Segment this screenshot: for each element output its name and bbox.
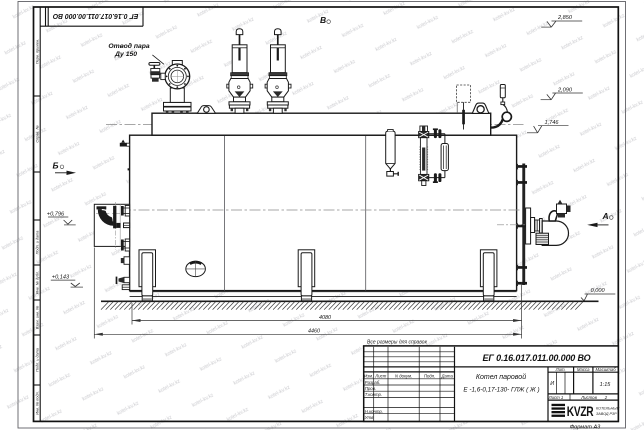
svg-text:Лит.: Лит. — [555, 367, 566, 372]
svg-text:Изм.: Изм. — [364, 373, 373, 378]
svg-text:ЕГ 0.16.017.011.00.000 ВО: ЕГ 0.16.017.011.00.000 ВО — [483, 353, 591, 363]
svg-text:Котел паровой: Котел паровой — [476, 373, 526, 381]
svg-text:Б: Б — [53, 161, 59, 171]
svg-text:Пров.: Пров. — [365, 386, 376, 391]
svg-text:Формат А3: Формат А3 — [570, 424, 601, 430]
svg-text:Инв. № дубл.: Инв. № дубл. — [35, 271, 39, 294]
svg-text:Ду 150: Ду 150 — [114, 51, 137, 58]
svg-text:Разраб.: Разраб. — [365, 380, 381, 385]
svg-text:1:15: 1:15 — [600, 382, 612, 388]
svg-text:1,746: 1,746 — [545, 120, 560, 126]
svg-text:Лист 1: Лист 1 — [548, 395, 564, 400]
svg-text:В: В — [320, 15, 326, 25]
svg-text:Дата: Дата — [441, 373, 454, 378]
svg-text:+0,143: +0,143 — [52, 274, 70, 280]
svg-text:4080: 4080 — [319, 315, 331, 321]
svg-text:KVZR: KVZR — [567, 403, 594, 419]
svg-text:Масса: Масса — [577, 367, 590, 372]
svg-text:0,000: 0,000 — [591, 288, 606, 294]
svg-text:Справ. №: Справ. № — [35, 125, 39, 142]
svg-text:Лист: Лист — [374, 373, 386, 378]
svg-text:Инв. № подл.: Инв. № подл. — [35, 391, 39, 415]
svg-text:ЗАВОД РЗР: ЗАВОД РЗР — [596, 412, 617, 416]
svg-text:Масштаб: Масштаб — [596, 367, 617, 372]
svg-text:А: А — [602, 211, 609, 221]
svg-text:Все размеры для справок: Все размеры для справок — [367, 339, 428, 345]
svg-text:Подп. и дата: Подп. и дата — [35, 231, 39, 255]
svg-text:2,850: 2,850 — [557, 15, 573, 21]
svg-text:Перв. примен.: Перв. примен. — [35, 39, 39, 64]
svg-text:ЕГ 0.16.017.011.00.000 ВО: ЕГ 0.16.017.011.00.000 ВО — [52, 12, 138, 19]
svg-text:Н.контр.: Н.контр. — [365, 409, 383, 414]
svg-text:Утв.: Утв. — [365, 415, 375, 420]
svg-text:Т.контр.: Т.контр. — [365, 392, 382, 397]
svg-text:Отвод пара: Отвод пара — [108, 42, 150, 50]
svg-text:КОТЕЛЬНЫЙ: КОТЕЛЬНЫЙ — [596, 406, 620, 410]
svg-text:Подп. и дата: Подп. и дата — [35, 348, 39, 372]
svg-text:И: И — [550, 381, 554, 387]
svg-text:N докум.: N докум. — [395, 373, 412, 378]
svg-text:Листов: Листов — [580, 395, 597, 400]
svg-text:Е -1,6-0,17-130- ГЛЖ ( Ж ): Е -1,6-0,17-130- ГЛЖ ( Ж ) — [463, 387, 539, 394]
svg-text:Взам. инв. №: Взам. инв. № — [35, 306, 39, 329]
svg-text:4460: 4460 — [308, 329, 320, 335]
svg-text:Подп.: Подп. — [424, 373, 435, 378]
